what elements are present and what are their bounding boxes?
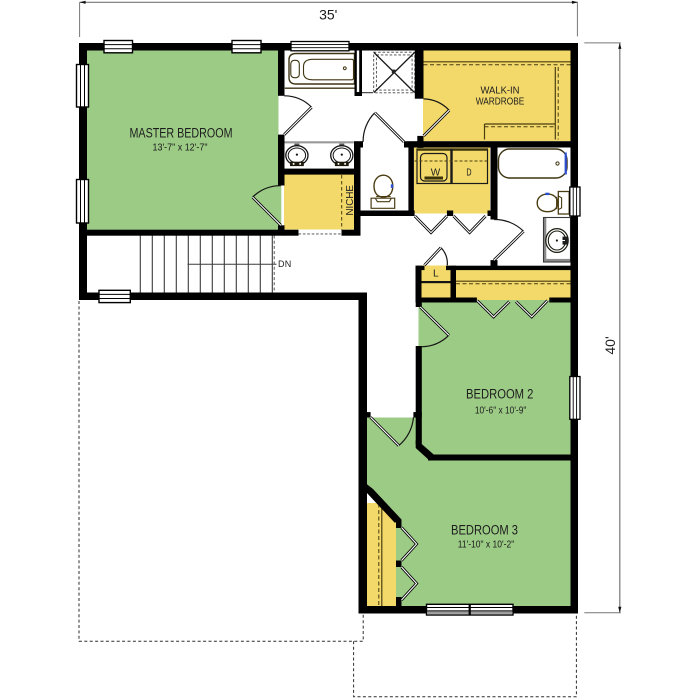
svg-text:WARDROBE: WARDROBE	[476, 97, 525, 108]
svg-text:D: D	[466, 167, 471, 178]
svg-text:13'-7" x 12'-7": 13'-7" x 12'-7"	[153, 142, 208, 153]
svg-text:BEDROOM 3: BEDROOM 3	[451, 523, 518, 538]
svg-text:WALK-IN: WALK-IN	[481, 86, 520, 97]
svg-text:MASTER BEDROOM: MASTER BEDROOM	[130, 125, 233, 140]
svg-text:BEDROOM 2: BEDROOM 2	[466, 387, 534, 402]
svg-text:L: L	[433, 268, 439, 279]
svg-text:NICHE: NICHE	[345, 185, 356, 216]
svg-text:11'-10" x 10'-2": 11'-10" x 10'-2"	[458, 539, 515, 550]
svg-text:DN: DN	[278, 259, 291, 269]
svg-text:W: W	[431, 168, 441, 179]
svg-text:35': 35'	[319, 6, 337, 22]
svg-text:40': 40'	[602, 336, 618, 354]
svg-text:10'-6" x 10'-9": 10'-6" x 10'-9"	[475, 405, 527, 416]
